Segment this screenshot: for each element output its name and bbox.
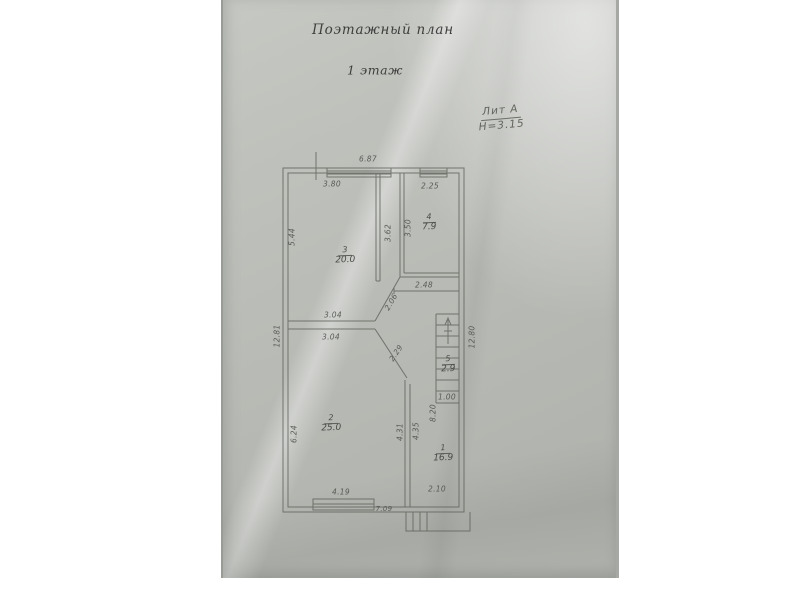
room-area: 16.9 (433, 454, 453, 465)
room-label-5: 5 2.9 (440, 347, 455, 375)
page-background: Поэтажный план 1 этаж Лит А Н=3.15 (0, 0, 800, 600)
porch (406, 512, 470, 531)
dim-room3-right: 3.62 (384, 224, 393, 242)
dim-room3-left: 5.44 (288, 228, 297, 246)
dim-top-total: 6.87 (359, 155, 377, 164)
room-label-1: 1 16.9 (432, 436, 453, 464)
dim-room3-top: 3.80 (323, 180, 341, 189)
dim-bottom-total: 7.09 (376, 505, 393, 513)
dim-wall-upper: 3.04 (324, 311, 342, 320)
dim-room2-left: 6.24 (290, 425, 299, 443)
dim-room4-left: 3.50 (404, 219, 413, 237)
dim-wall-lower: 3.04 (322, 333, 340, 342)
dim-room2-right: 4.31 (396, 423, 405, 441)
dim-hall-width: 2.48 (415, 281, 433, 290)
room-label-4: 4 7.9 (421, 205, 436, 233)
dim-room4-top: 2.25 (421, 182, 439, 191)
floor-plan-drawing (0, 0, 800, 600)
room-label-3: 3 20.0 (334, 238, 355, 266)
dim-room1-left: 4.35 (412, 422, 421, 440)
dim-room2-bottom: 4.19 (332, 488, 350, 497)
room-area: 2.9 (441, 365, 456, 375)
dim-left-total: 12.81 (273, 325, 282, 348)
dim-right-total: 12.80 (468, 326, 477, 349)
room-area: 25.0 (321, 424, 341, 435)
dim-room1-right: 8.20 (429, 404, 438, 422)
room-area: 20.0 (335, 256, 355, 267)
room-label-2: 2 25.0 (320, 406, 341, 434)
room-area: 7.9 (422, 223, 437, 233)
dim-room1-bottom: 2.10 (428, 485, 446, 494)
dim-stair-width: 1.00 (438, 393, 456, 402)
